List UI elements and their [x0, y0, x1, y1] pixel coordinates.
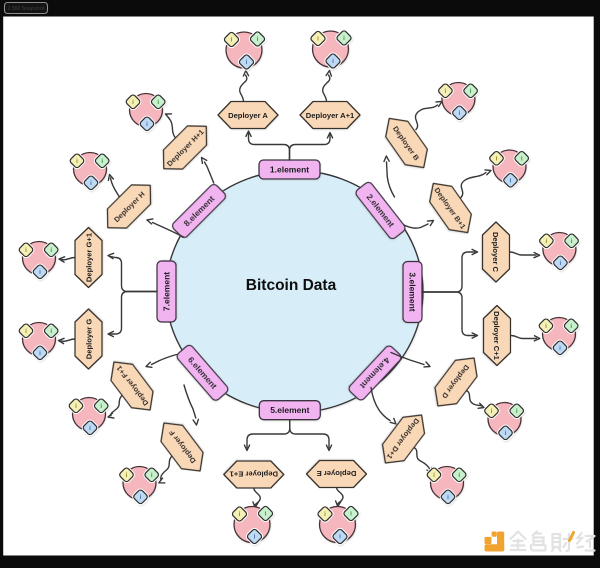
svg-text:i: i [560, 260, 562, 267]
svg-text:3.element: 3.element [408, 272, 418, 311]
svg-text:i: i [50, 247, 52, 254]
svg-text:Deployer A+1: Deployer A+1 [306, 111, 355, 120]
svg-text:i: i [231, 37, 233, 44]
svg-text:i: i [257, 36, 259, 43]
svg-text:1.element: 1.element [270, 165, 309, 175]
svg-text:Deployer G: Deployer G [84, 319, 93, 360]
svg-text:i: i [100, 403, 102, 410]
svg-text:i: i [339, 534, 341, 541]
svg-text:Bitcoin Data: Bitcoin Data [246, 277, 337, 294]
svg-text:i: i [546, 238, 548, 245]
svg-text:i: i [101, 158, 103, 165]
svg-text:i: i [505, 430, 507, 437]
svg-text:i: i [39, 269, 41, 276]
svg-text:i: i [246, 59, 248, 66]
svg-text:i: i [559, 345, 561, 352]
svg-text:i: i [433, 472, 435, 479]
svg-text:i: i [545, 323, 547, 330]
svg-text:i: i [89, 425, 91, 432]
svg-text:i: i [265, 511, 267, 518]
svg-text:i: i [25, 247, 27, 254]
svg-text:i: i [146, 121, 148, 128]
svg-text:i: i [151, 472, 153, 479]
svg-text:Deployer C: Deployer C [491, 232, 500, 273]
svg-text:Deployer G+1: Deployer G+1 [84, 232, 93, 282]
svg-text:i: i [470, 88, 472, 95]
svg-text:i: i [570, 323, 572, 330]
svg-text:Deployer A: Deployer A [228, 111, 268, 120]
svg-text:i: i [516, 408, 518, 415]
svg-text:i: i [571, 238, 573, 245]
svg-text:i: i [447, 494, 449, 501]
svg-text:i: i [254, 534, 256, 541]
svg-text:i: i [343, 35, 345, 42]
svg-text:Deployer E+1: Deployer E+1 [229, 470, 278, 479]
svg-text:5.element: 5.element [270, 405, 309, 415]
svg-text:i: i [140, 494, 142, 501]
svg-text:7.element: 7.element [162, 272, 172, 311]
svg-text:i: i [157, 99, 159, 106]
svg-text:i: i [126, 472, 128, 479]
svg-text:i: i [521, 156, 523, 163]
svg-text:i: i [459, 110, 461, 117]
svg-text:i: i [510, 178, 512, 185]
svg-text:i: i [90, 180, 92, 187]
svg-text:i: i [491, 408, 493, 415]
svg-text:i: i [75, 403, 77, 410]
svg-text:i: i [76, 158, 78, 165]
svg-text:i: i [132, 99, 134, 106]
svg-text:i: i [445, 88, 447, 95]
svg-text:i: i [317, 36, 319, 43]
svg-text:i: i [239, 511, 241, 518]
svg-text:i: i [350, 511, 352, 518]
svg-text:i: i [50, 328, 52, 335]
svg-text:Deployer E: Deployer E [317, 469, 357, 478]
svg-text:Deployer C+1: Deployer C+1 [492, 311, 501, 361]
svg-text:i: i [39, 350, 41, 357]
svg-text:i: i [324, 511, 326, 518]
svg-text:i: i [496, 156, 498, 163]
svg-text:i: i [332, 58, 334, 65]
svg-text:2.5M Snapshot: 2.5M Snapshot [8, 6, 45, 12]
svg-text:i: i [25, 328, 27, 335]
svg-text:i: i [458, 472, 460, 479]
